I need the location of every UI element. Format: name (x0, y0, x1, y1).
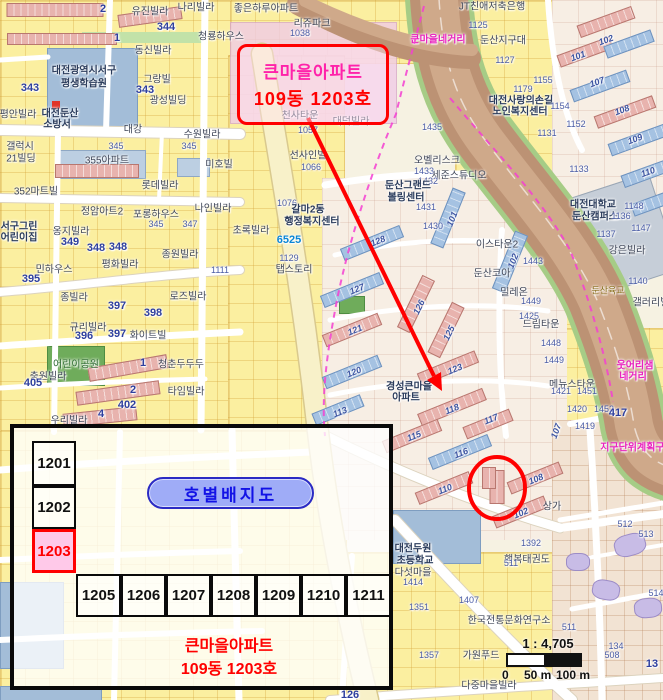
unit-cell-1201: 1201 (32, 441, 76, 486)
inset-caption-apartment: 큰마을아파트 (124, 632, 334, 656)
unit-layout-inset: 1201120212031205120612071208120912101211… (10, 424, 393, 690)
scale-bar-graphic (506, 653, 582, 667)
unit-cell-1210: 1210 (301, 574, 346, 617)
scale-ratio: 1 : 4,705 (498, 636, 598, 651)
callout-apartment-name: 큰마을아파트 (263, 58, 363, 83)
map-canvas[interactable]: 유진빌라나리빌라동신빌라청룡하우스344대전광역시서구평생학습원그랑빌34334… (0, 0, 663, 700)
inset-title-pill: 호별배지도 (147, 477, 314, 509)
unit-cell-1208: 1208 (211, 574, 256, 617)
inset-caption-unit: 109동 1203호 (124, 655, 334, 679)
unit-cell-1206: 1206 (121, 574, 166, 617)
callout-box: 큰마을아파트 109동 1203호 (237, 44, 389, 125)
unit-cell-1207: 1207 (166, 574, 211, 617)
scale-tick-0: 0 (502, 668, 509, 682)
unit-cell-1205: 1205 (76, 574, 121, 617)
scale-bar: 1 : 4,705 0 50 m 100 m (498, 636, 598, 682)
scale-tick-50: 50 m (524, 668, 551, 682)
unit-cell-1211: 1211 (346, 574, 391, 617)
target-circle (469, 457, 525, 519)
unit-cell-1203: 1203 (32, 529, 76, 573)
scale-tick-100: 100 m (556, 668, 590, 682)
callout-unit-number: 109동 1203호 (254, 85, 372, 111)
unit-cell-1209: 1209 (256, 574, 301, 617)
unit-cell-1202: 1202 (32, 486, 76, 529)
